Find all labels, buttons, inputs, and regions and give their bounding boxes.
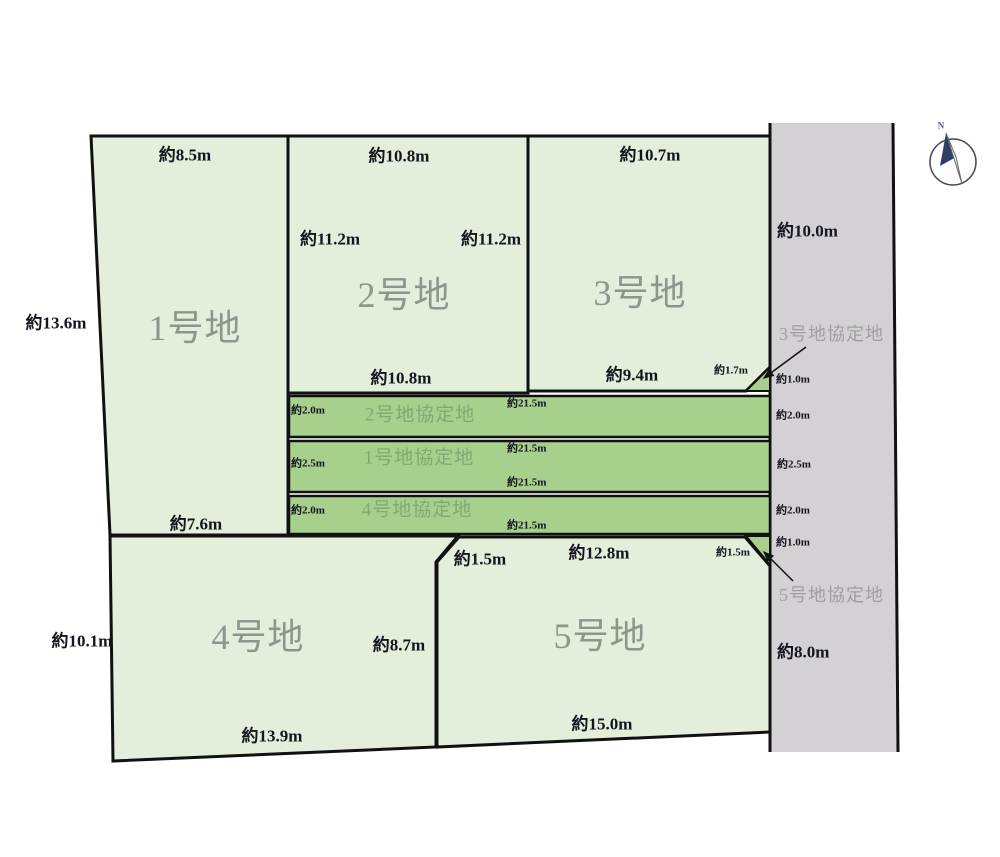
lot3-label: 3号地: [593, 275, 686, 311]
lot4-bottom-dim: 約13.9m: [242, 728, 303, 745]
road-side-dim-lot1-strip: 約2.5m: [777, 460, 811, 471]
lot1-top-dim: 約8.5m: [159, 147, 211, 164]
lot3-shape: [528, 136, 770, 391]
lot1-strip-width-dim: 約2.5m: [291, 459, 325, 470]
lot3-corner-dim: 約1.7m: [714, 366, 748, 377]
lot5-agreement-label: 5号地協定地: [779, 586, 884, 604]
lot1-strip-length-bottom-dim: 約21.5m: [507, 478, 546, 489]
lot2-strip-width-dim: 約2.0m: [291, 406, 325, 417]
road-top-dim: 約10.0m: [777, 223, 838, 240]
lot4-label: 4号地: [211, 619, 304, 655]
lot3-bottom-dim: 約9.4m: [606, 367, 658, 384]
lot2-left-dim: 約11.2m: [300, 231, 360, 248]
compass-north-label: N: [938, 122, 945, 131]
lot1-bottom-dim: 約7.6m: [170, 516, 222, 533]
road-bottom-dim: 約8.0m: [777, 644, 829, 661]
lot5-label: 5号地: [553, 618, 646, 654]
lot4-strip-width-dim: 約2.0m: [291, 506, 325, 517]
lot5-top-dim: 約12.8m: [569, 545, 630, 562]
lot1-left-dim: 約13.6m: [26, 315, 87, 332]
lot2-shape: [288, 136, 528, 393]
lot2-strip-length-dim: 約21.5m: [507, 399, 546, 410]
lot2-right-dim: 約11.2m: [461, 231, 521, 248]
lot1-strip-length-top-dim: 約21.5m: [507, 444, 546, 455]
lot5-corner-tl-dim: 約1.5m: [454, 551, 506, 568]
road-side-dim-lot2-strip: 約2.0m: [776, 411, 810, 422]
diagram-shapes: [0, 0, 1000, 857]
lot2-label: 2号地: [357, 277, 450, 313]
lot5-bottom-dim: 約15.0m: [572, 716, 633, 733]
lot3-strip-width-dim: 約1.0m: [776, 375, 810, 386]
lot4-right-dim: 約8.7m: [373, 637, 425, 654]
lot1-label: 1号地: [148, 310, 241, 346]
lot2-strip-label: 2号地協定地: [365, 406, 476, 425]
lot3-top-dim: 約10.7m: [620, 147, 681, 164]
lot3-agreement-label: 3号地協定地: [779, 325, 884, 343]
lot4-strip-length-dim: 約21.5m: [507, 521, 546, 532]
lot5-strip-width-dim: 約1.0m: [776, 538, 810, 549]
lot4-left-dim: 約10.1m: [52, 633, 113, 650]
road-side-dim-lot4-strip: 約2.0m: [776, 506, 810, 517]
lot-layout-diagram: 約8.5m 約13.6m 約7.6m 1号地 約10.8m 約11.2m 約11…: [0, 0, 1000, 857]
lot5-corner-tr-dim: 約1.5m: [716, 548, 750, 559]
lot2-top-dim: 約10.8m: [369, 148, 430, 165]
lot1-strip-label: 1号地協定地: [364, 449, 475, 468]
lot2-bottom-dim: 約10.8m: [371, 370, 432, 387]
compass-icon: [930, 133, 976, 185]
lot4-strip-label: 4号地協定地: [362, 501, 473, 520]
